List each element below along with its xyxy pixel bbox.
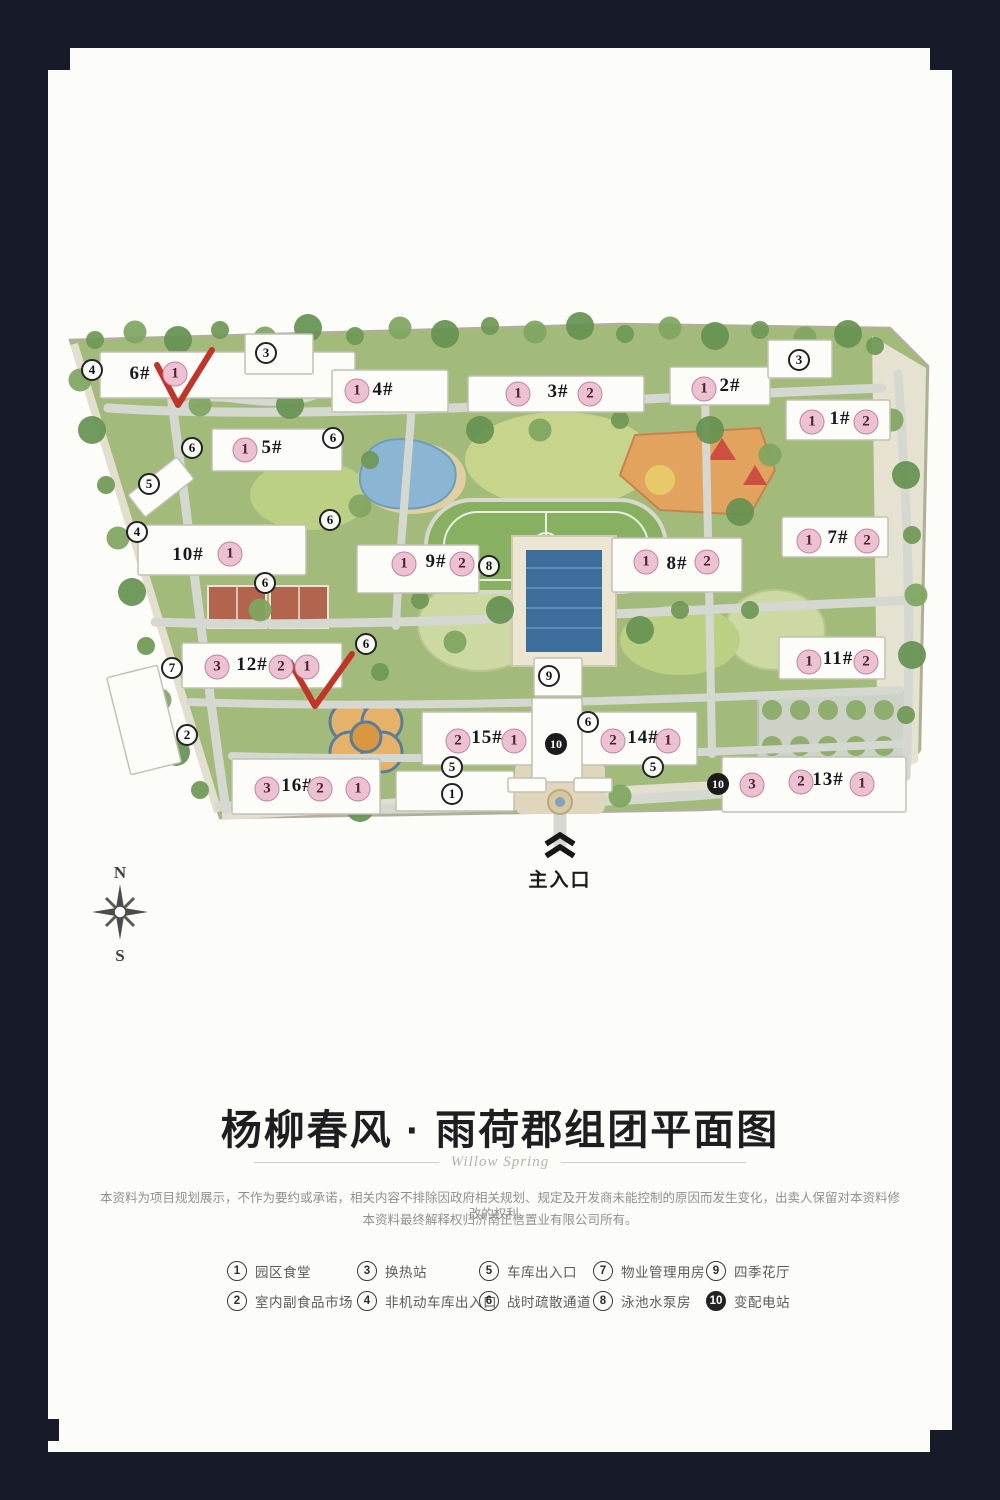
unit-marker: 1 [346, 777, 371, 802]
building-label-10: 10# [172, 544, 204, 566]
legend-label: 四季花厅 [734, 1261, 790, 1281]
legend-label: 物业管理用房 [621, 1261, 705, 1281]
unit-marker: 1 [233, 438, 258, 463]
legend-label: 车库出入口 [507, 1261, 577, 1281]
legend-item-1: 1园区食堂 [227, 1261, 357, 1281]
legend-number-icon: 1 [227, 1261, 247, 1281]
facility-marker: 2 [176, 724, 198, 746]
divider-line [254, 1162, 439, 1163]
legend-label: 室内副食品市场 [255, 1291, 353, 1311]
unit-marker: 2 [450, 552, 475, 577]
legend-label: 变配电站 [734, 1291, 790, 1311]
disclaimer-line-2: 本资料最终解释权归济南正信置业有限公司所有。 [100, 1212, 900, 1228]
page-title: 杨柳春风 · 雨荷郡组团平面图 [0, 1096, 1000, 1156]
facility-marker: 6 [181, 437, 203, 459]
unit-marker: 1 [163, 362, 188, 387]
unit-marker: 2 [578, 382, 603, 407]
unit-marker: 3 [205, 655, 230, 680]
facility-marker: 6 [322, 427, 344, 449]
unit-marker: 1 [800, 410, 825, 435]
unit-marker: 2 [601, 729, 626, 754]
legend-item-4: 4非机动车库出入口 [357, 1291, 479, 1311]
facility-marker: 6 [319, 509, 341, 531]
facility-marker: 6 [577, 711, 599, 733]
unit-marker: 1 [692, 377, 717, 402]
legend-item-2: 2室内副食品市场 [227, 1291, 357, 1311]
unit-marker: 1 [295, 655, 320, 680]
building-label-15: 15# [471, 727, 503, 749]
site-plan: 6#4#3#2#1#5#10#9#8#7#12#11#15#14#16#13#1… [60, 310, 935, 850]
unit-marker: 1 [392, 552, 417, 577]
legend-number-icon: 10 [706, 1291, 726, 1311]
facility-marker: 10 [707, 773, 729, 795]
building-label-1: 1# [830, 408, 851, 430]
facility-marker: 8 [478, 555, 500, 577]
legend-item-3: 3换热站 [357, 1261, 479, 1281]
building-label-5: 5# [262, 437, 283, 459]
legend-number-icon: 6 [479, 1291, 499, 1311]
facility-marker: 3 [255, 342, 277, 364]
legend-item-7: 7物业管理用房 [593, 1261, 706, 1281]
unit-marker: 1 [850, 772, 875, 797]
legend-number-icon: 5 [479, 1261, 499, 1281]
building-label-7: 7# [828, 527, 849, 549]
unit-marker: 2 [269, 655, 294, 680]
building-label-4: 4# [373, 379, 394, 401]
compass-rose-icon [90, 882, 150, 942]
compass-north-label: N [88, 864, 152, 882]
facility-marker: 4 [81, 359, 103, 381]
building-label-9: 9# [426, 551, 447, 573]
unit-marker: 2 [854, 410, 879, 435]
legend-number-icon: 9 [706, 1261, 726, 1281]
entrance-chevron-icon [540, 832, 580, 858]
unit-marker: 2 [855, 529, 880, 554]
unit-marker: 2 [695, 550, 720, 575]
facility-marker: 6 [254, 572, 276, 594]
building-label-12: 12# [236, 654, 268, 676]
signature-text: Willow Spring [451, 1154, 549, 1171]
legend-item-6: 6战时疏散通道 [479, 1291, 593, 1311]
building-label-8: 8# [667, 553, 688, 575]
legend-number-icon: 3 [357, 1261, 377, 1281]
facility-marker: 5 [138, 473, 160, 495]
unit-marker: 1 [345, 379, 370, 404]
unit-marker: 1 [656, 729, 681, 754]
compass-south-label: S [88, 947, 152, 965]
frame-notch [930, 48, 952, 70]
frame-notch [48, 48, 70, 70]
legend-item-8: 8泳池水泵房 [593, 1291, 706, 1311]
building-label-6: 6# [130, 363, 151, 385]
legend: 1园区食堂2室内副食品市场3换热站4非机动车库出入口5车库出入口6战时疏散通道7… [227, 1256, 796, 1316]
flyer-page: { "title_block": { "heading": "杨柳春风 · 雨荷… [0, 0, 1000, 1500]
legend-label: 换热站 [385, 1261, 427, 1281]
unit-marker: 1 [634, 550, 659, 575]
divider-line [561, 1162, 746, 1163]
unit-marker: 2 [854, 650, 879, 675]
frame-notch [37, 1419, 59, 1441]
main-entrance: 主入口 [498, 832, 622, 892]
legend-number-icon: 7 [593, 1261, 613, 1281]
building-label-13: 13# [812, 769, 844, 791]
signature-divider: Willow Spring [0, 1154, 1000, 1171]
entrance-label: 主入口 [498, 865, 622, 892]
legend-number-icon: 8 [593, 1291, 613, 1311]
legend-number-icon: 4 [357, 1291, 377, 1311]
unit-marker: 1 [506, 382, 531, 407]
facility-marker: 1 [441, 783, 463, 805]
facility-marker: 7 [161, 657, 183, 679]
facility-marker: 4 [126, 521, 148, 543]
facility-marker: 9 [538, 665, 560, 687]
unit-marker: 1 [502, 729, 527, 754]
unit-marker: 3 [255, 777, 280, 802]
unit-marker: 2 [446, 729, 471, 754]
facility-marker: 3 [788, 349, 810, 371]
legend-label: 战时疏散通道 [507, 1291, 591, 1311]
legend-item-9: 9四季花厅 [706, 1261, 796, 1281]
unit-marker: 2 [308, 777, 333, 802]
site-map-overlay: 6#4#3#2#1#5#10#9#8#7#12#11#15#14#16#13#1… [60, 310, 935, 850]
building-label-2: 2# [720, 375, 741, 397]
unit-marker: 3 [740, 773, 765, 798]
legend-item-5: 5车库出入口 [479, 1261, 593, 1281]
facility-marker: 5 [441, 756, 463, 778]
legend-label: 泳池水泵房 [621, 1291, 691, 1311]
facility-marker: 5 [642, 756, 664, 778]
facility-marker: 6 [355, 633, 377, 655]
legend-label: 园区食堂 [255, 1261, 311, 1281]
frame-notch [930, 1430, 952, 1452]
unit-marker: 1 [218, 542, 243, 567]
legend-item-10: 10变配电站 [706, 1291, 796, 1311]
building-label-3: 3# [548, 381, 569, 403]
compass: N S [88, 864, 152, 965]
building-label-11: 11# [823, 648, 853, 670]
unit-marker: 2 [789, 770, 814, 795]
unit-marker: 1 [797, 529, 822, 554]
unit-marker: 1 [797, 650, 822, 675]
legend-number-icon: 2 [227, 1291, 247, 1311]
building-label-14: 14# [627, 727, 659, 749]
facility-marker: 10 [545, 733, 567, 755]
